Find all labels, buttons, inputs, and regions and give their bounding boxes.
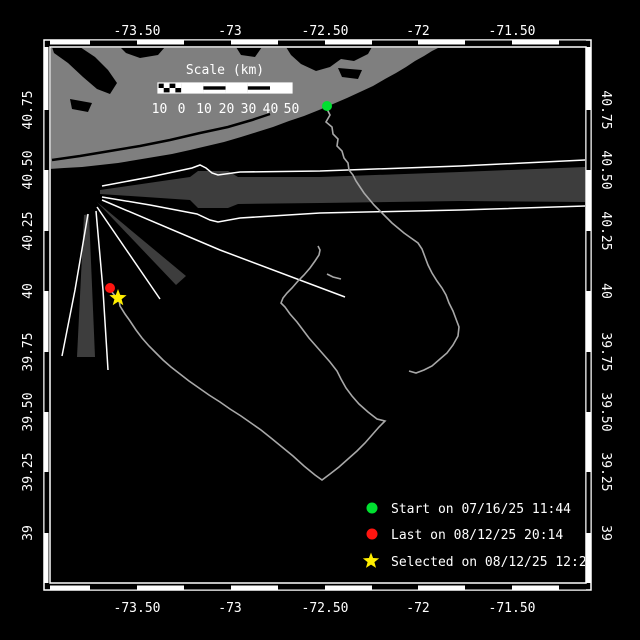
- last-marker-red-dot[interactable]: [105, 283, 115, 293]
- track-map: -73.50 -73 -72.50 -72 -71.50 -73.50 -73 …: [0, 0, 640, 640]
- lat-tick-label: 40.75: [598, 90, 613, 129]
- lon-tick-label: -73: [218, 601, 241, 616]
- scale-num: 0: [178, 102, 186, 117]
- lon-tick-label: -73.50: [114, 24, 161, 39]
- scale-num: 20: [219, 102, 235, 117]
- lon-tick-label: -71.50: [489, 24, 536, 39]
- scale-seg-0-10: [181, 83, 203, 93]
- scale-seg-40-50: [270, 83, 292, 93]
- lat-tick-label: 39.50: [21, 392, 36, 431]
- legend-selected-label: Selected on 08/12/25 12:29: [391, 555, 595, 570]
- legend: Start on 07/16/25 11:44 Last on 08/12/25…: [363, 502, 595, 570]
- lon-tick-label: -72: [406, 601, 429, 616]
- lat-tick-label: 40.25: [598, 211, 613, 250]
- lat-tick-label: 39.50: [598, 392, 613, 431]
- lat-tick-label: 39.25: [598, 452, 613, 491]
- scale-num: 50: [284, 102, 300, 117]
- lat-tick-label: 39: [598, 525, 613, 541]
- lat-tick-label: 39.25: [21, 452, 36, 491]
- lon-tick-label: -72.50: [302, 24, 349, 39]
- scale-num: 10: [152, 102, 168, 117]
- lat-tick-label: 40: [598, 283, 613, 299]
- scale-seg-20-30: [226, 83, 248, 93]
- lon-tick-label: -72.50: [302, 601, 349, 616]
- legend-last-label: Last on 08/12/25 20:14: [391, 528, 563, 543]
- lat-tick-label: 40: [21, 283, 36, 299]
- lat-tick-label: 40.75: [21, 90, 36, 129]
- scale-num: 40: [263, 102, 279, 117]
- lat-tick-label: 40.50: [21, 150, 36, 189]
- lat-tick-label: 39: [21, 525, 36, 541]
- start-marker-green-dot[interactable]: [322, 101, 332, 111]
- scale-bar-title: Scale (km): [186, 63, 264, 78]
- lon-tick-label: -73.50: [114, 601, 161, 616]
- legend-green-dot-icon: [367, 503, 378, 514]
- legend-red-dot-icon: [367, 529, 378, 540]
- lon-tick-label: -72: [406, 24, 429, 39]
- scale-num: 30: [241, 102, 257, 117]
- scale-bar-checks: [158, 83, 181, 93]
- scale-seg-stripe: [203, 86, 225, 89]
- legend-start-label: Start on 07/16/25 11:44: [391, 502, 571, 517]
- lat-tick-label: 40.25: [21, 211, 36, 250]
- scale-num: 10: [196, 102, 212, 117]
- lat-tick-label: 40.50: [598, 150, 613, 189]
- lat-tick-label: 39.75: [21, 332, 36, 371]
- scale-seg-stripe: [248, 86, 270, 89]
- lat-tick-label: 39.75: [598, 332, 613, 371]
- lon-tick-label: -71.50: [489, 601, 536, 616]
- lon-tick-label: -73: [218, 24, 241, 39]
